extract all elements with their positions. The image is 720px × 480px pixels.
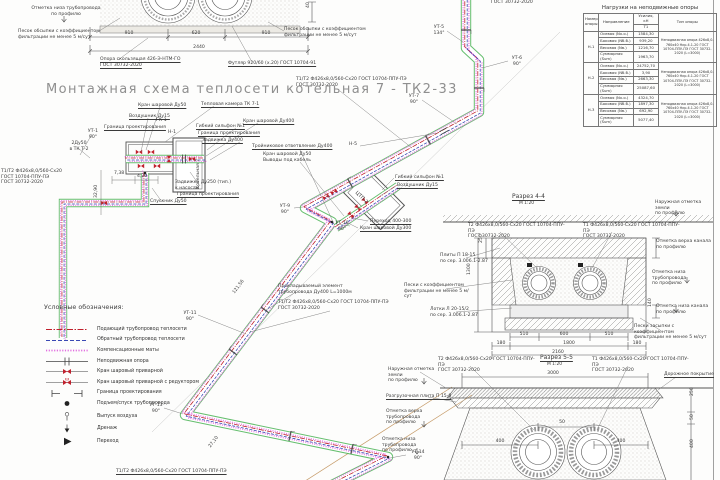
- col-support: Номер опоры: [584, 13, 599, 31]
- support-id: Н-1: [584, 31, 599, 63]
- col-force: Усилия, кН: [634, 13, 658, 24]
- topleft-section-drawing: [88, 0, 316, 62]
- legend-item-air-outlet: Выпуск воздуха: [44, 412, 222, 421]
- boiler-building: [173, 138, 205, 192]
- drawing-sheet: { "title": "Монтажная схема теплосети ко…: [0, 0, 720, 480]
- air-outlet-icon: [44, 412, 90, 421]
- col-force-sub: Т1: [634, 24, 658, 31]
- legend-item-supply-pipe: Подающий трубопровод теплосети: [44, 325, 222, 334]
- main-route: [182, 0, 482, 480]
- legend-item-ball-valve: Кран шаровый приварной: [44, 367, 222, 376]
- rise-point-icon: [44, 399, 90, 408]
- legend: Условные обозначения: Подающий трубопров…: [44, 303, 222, 450]
- section-5-5-drawing: [420, 366, 713, 480]
- table-row: Н-2 Осевая (Nх.о.) 24752,70 Неподвижная …: [584, 63, 717, 70]
- road-crossing-lines: [302, 387, 472, 480]
- table-header-row: Номер опоры Направление Усилия, кН Тип о…: [584, 13, 717, 24]
- legend-title: Условные обозначения:: [44, 303, 222, 311]
- support-type-cell: Неподвижная опора 426х8,0-760х40 Нкр.4.1…: [658, 63, 716, 95]
- col-type: Тип опоры: [658, 13, 716, 31]
- legend-item-ball-valve-gear: Кран шаровый приварной с редуктором: [44, 378, 222, 387]
- legend-item-fixed-support: Неподвижная опора: [44, 357, 222, 366]
- t2-line-icon: [44, 336, 90, 345]
- force-cell: 1584,30: [634, 31, 658, 38]
- legend-item-design-boundary: Граница проектирования: [44, 389, 222, 398]
- t1-line-icon: [44, 325, 90, 334]
- transition-icon: [44, 437, 90, 446]
- legend-item-return-pipe: Обратный трубопровод теплосети: [44, 336, 222, 345]
- legend-item-comp-mats: Компенсационные маты: [44, 346, 222, 355]
- legend-item-transition: Переход: [44, 437, 222, 446]
- support-type-cell: Неподвижная опора 426х8,0-760х40 Нкр.4.1…: [658, 31, 716, 63]
- legend-item-rise-point: Подъем/спуск трубопровода: [44, 399, 222, 408]
- table-row: Н-3 Осевая (Nх.о.) 4324,70 Неподвижная о…: [584, 95, 717, 102]
- section-4-4-drawing: [443, 215, 713, 359]
- support-id: Н-2: [584, 63, 599, 95]
- table-row: Н-1 Осевая (Nх.о.) 1584,30 Неподвижная о…: [584, 31, 717, 38]
- direction-cell: Осевая (Nх.о.): [599, 31, 634, 38]
- col-direction: Направление: [599, 13, 634, 31]
- mats-line-icon: [44, 346, 90, 355]
- ball-valve-gear-icon: [44, 378, 90, 387]
- support-id: Н-3: [584, 95, 599, 127]
- fixed-support-icon: [44, 357, 90, 366]
- legend-item-drain: Дренаж: [44, 424, 222, 433]
- loads-table-title: Нагрузки на неподвижные опоры: [583, 5, 717, 11]
- scheme-dim-lines: [101, 170, 158, 215]
- drain-icon: [44, 424, 90, 433]
- loads-table: Нагрузки на неподвижные опоры Номер опор…: [583, 5, 717, 127]
- ball-valve-icon: [44, 367, 90, 376]
- support-type-cell: Неподвижная опора 426х8,0-760х40 Нкр.4.1…: [658, 95, 716, 127]
- design-boundary-icon: [44, 389, 90, 398]
